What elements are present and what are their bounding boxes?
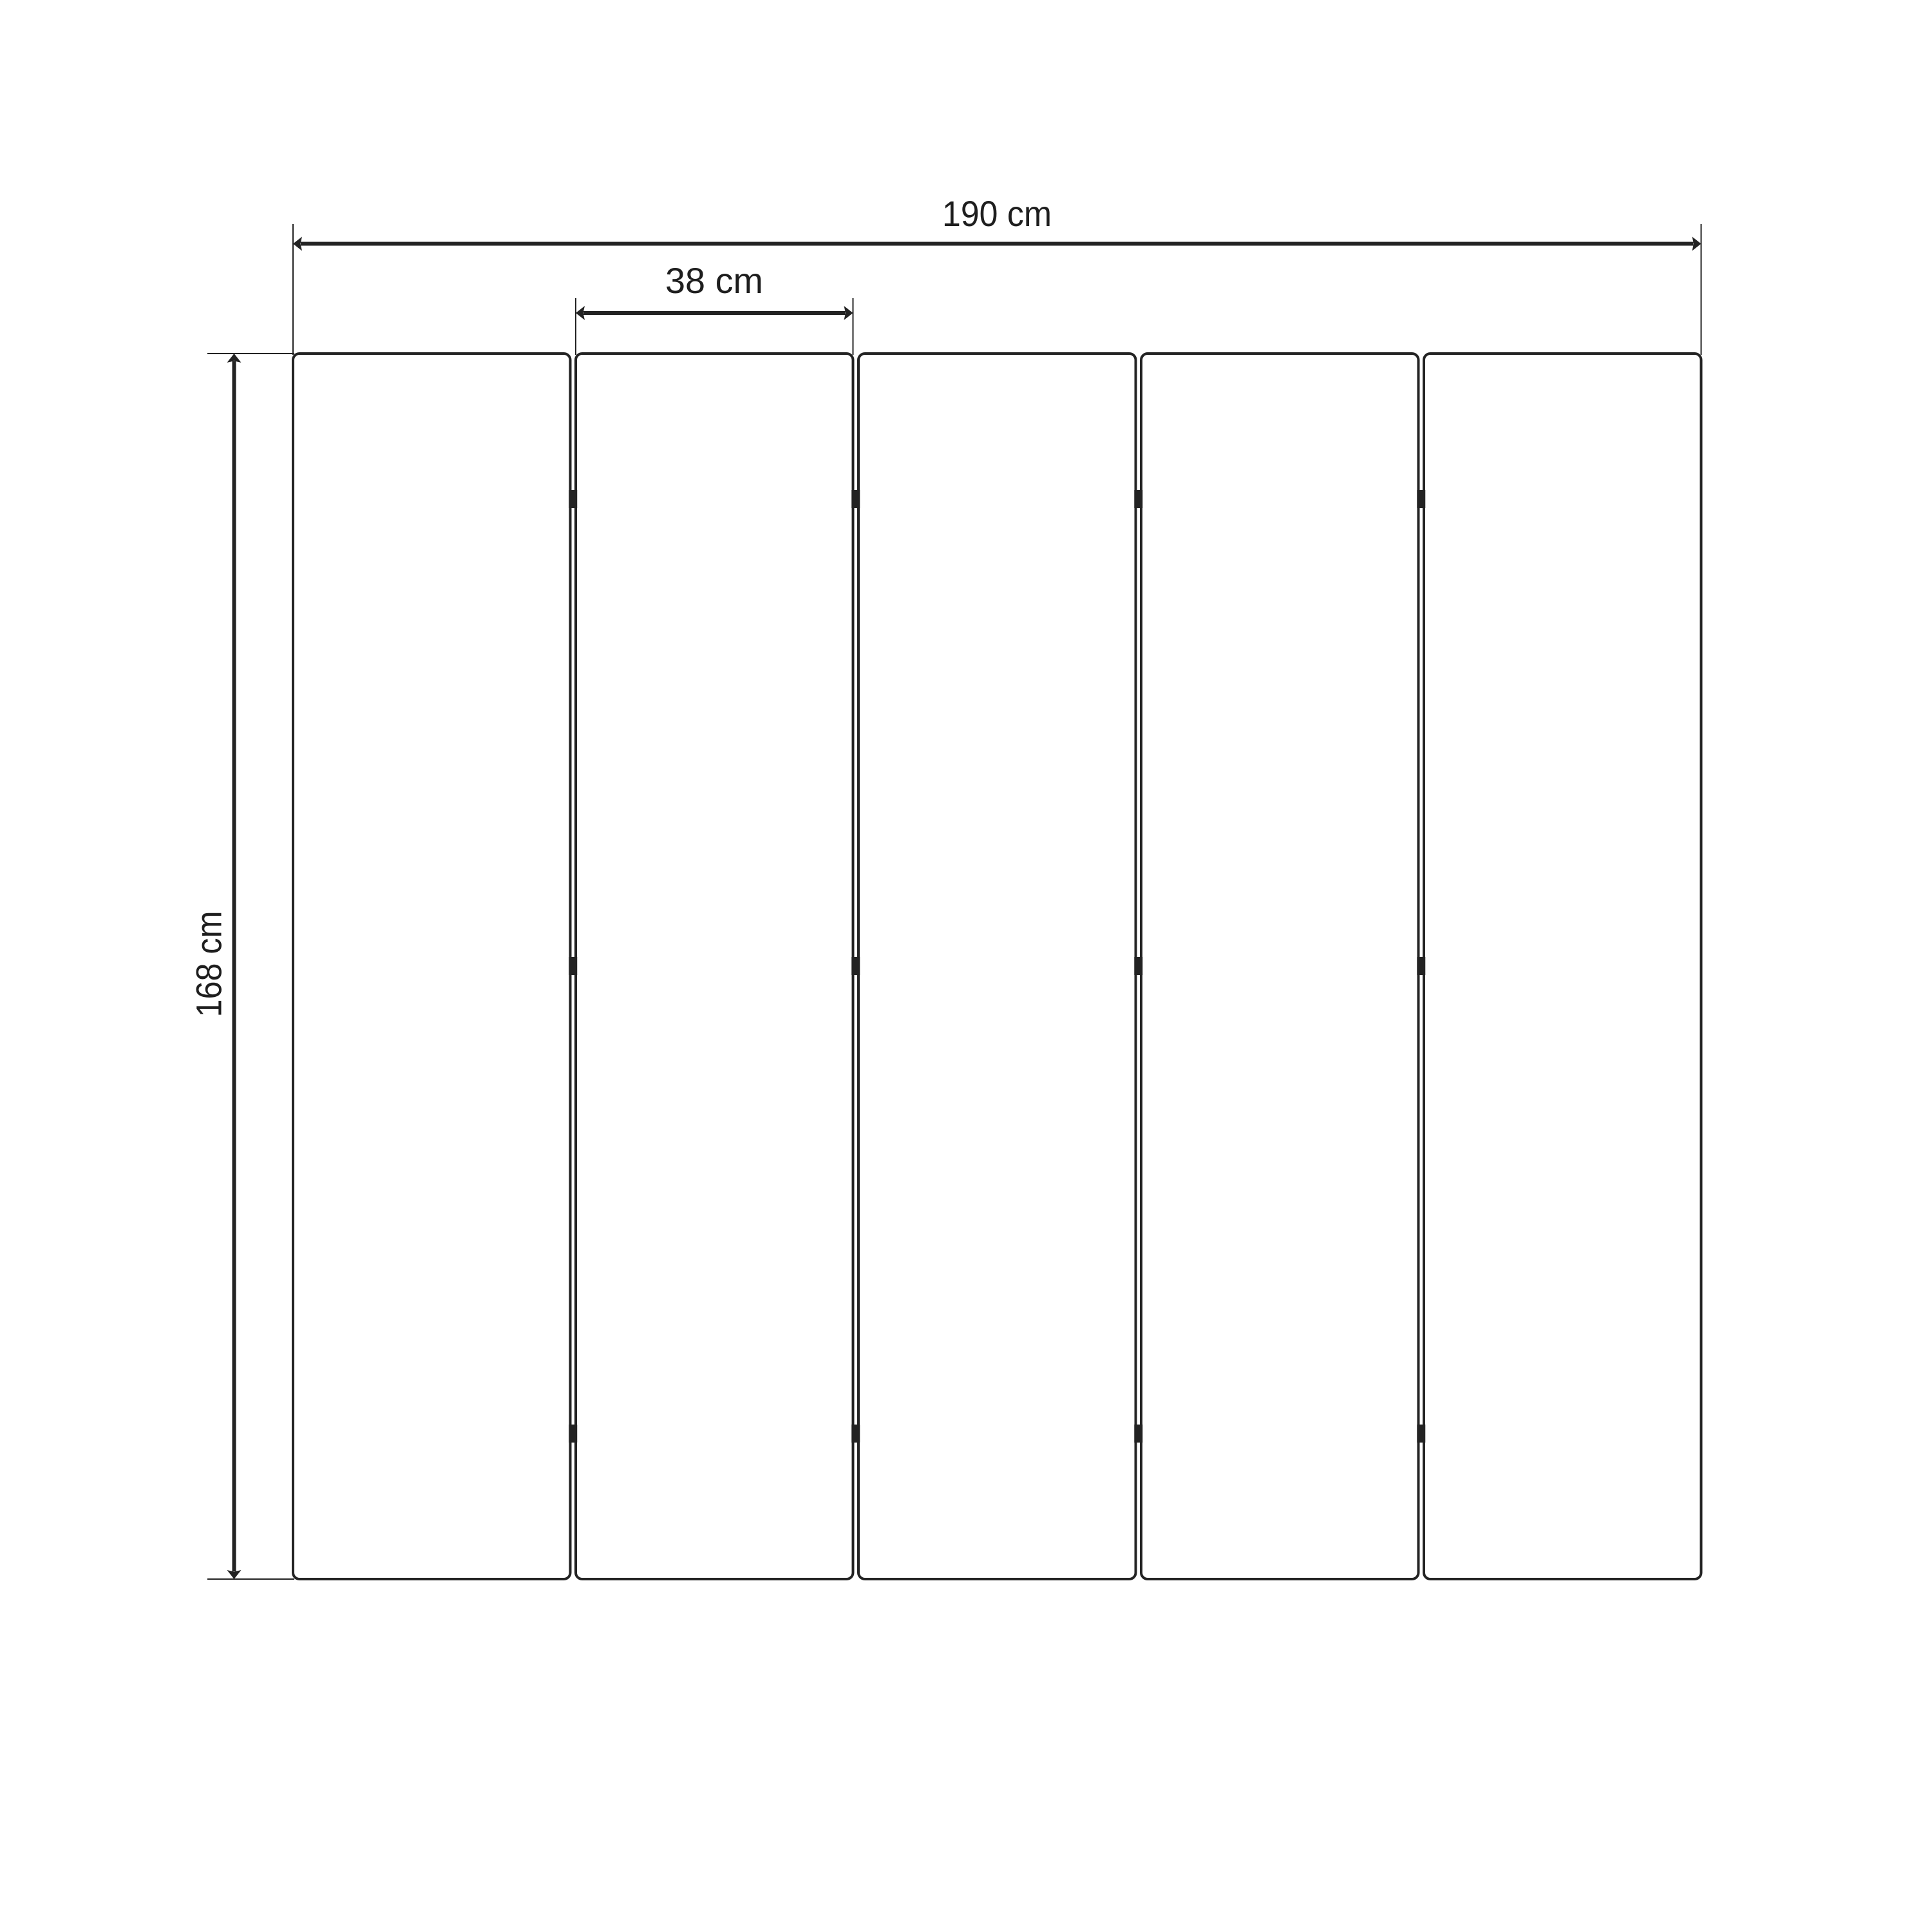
svg-text:38 cm: 38 cm bbox=[665, 260, 763, 301]
svg-text:168 cm: 168 cm bbox=[188, 911, 229, 1018]
svg-text:190 cm: 190 cm bbox=[942, 193, 1052, 234]
